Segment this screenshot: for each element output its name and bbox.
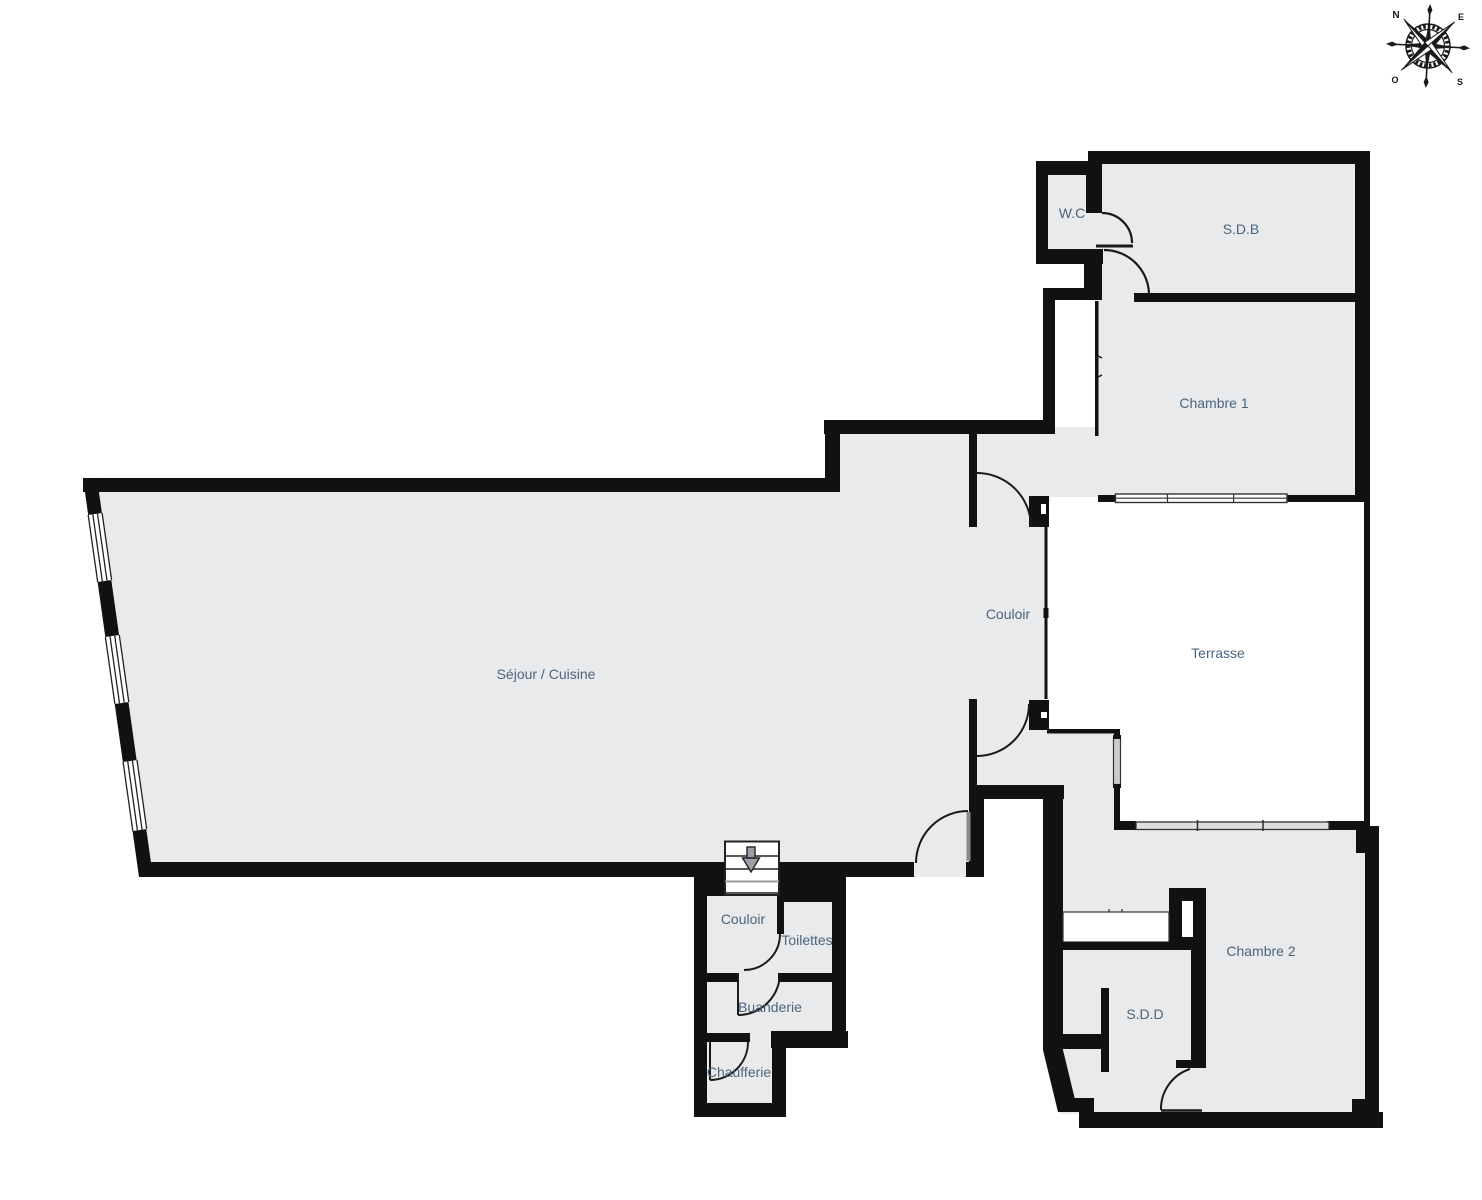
svg-text:S.D.B: S.D.B (1223, 221, 1260, 237)
svg-text:Couloir: Couloir (986, 606, 1031, 622)
svg-text:Séjour / Cuisine: Séjour / Cuisine (497, 666, 596, 682)
svg-text:Buanderie: Buanderie (738, 999, 802, 1015)
svg-text:E: E (1458, 12, 1464, 22)
svg-text:N: N (1392, 10, 1399, 21)
svg-text:Toilettes: Toilettes (781, 932, 832, 948)
svg-text:S.D.D: S.D.D (1126, 1006, 1163, 1022)
svg-text:Terrasse: Terrasse (1191, 645, 1245, 661)
svg-text:S: S (1457, 77, 1463, 87)
svg-text:W.C: W.C (1059, 205, 1085, 221)
svg-text:Chambre 2: Chambre 2 (1226, 943, 1295, 959)
svg-text:Chambre 1: Chambre 1 (1179, 395, 1248, 411)
svg-text:Couloir: Couloir (721, 911, 766, 927)
svg-text:O: O (1391, 75, 1398, 85)
svg-text:Chaufferie: Chaufferie (707, 1064, 772, 1080)
